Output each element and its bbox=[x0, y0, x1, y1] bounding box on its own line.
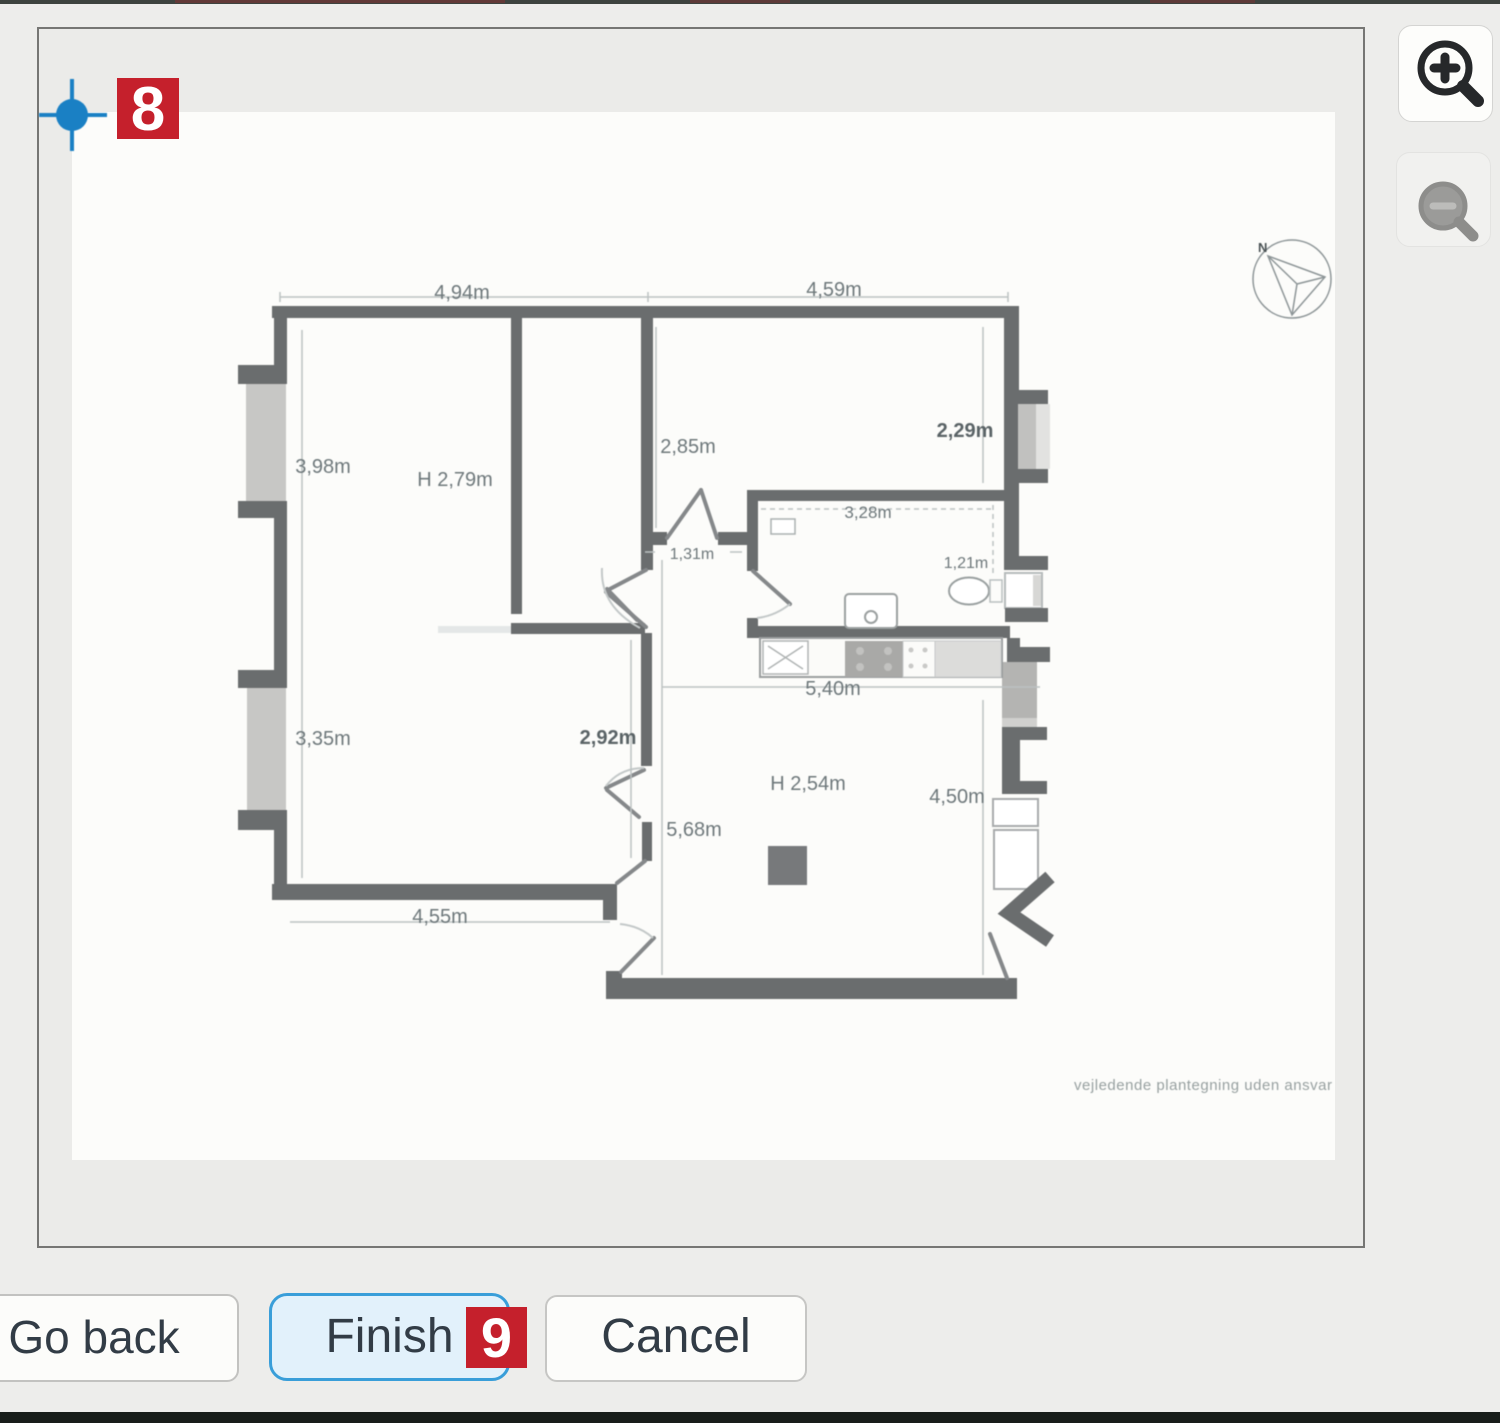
svg-text:4,59m: 4,59m bbox=[806, 279, 862, 301]
svg-text:4,50m: 4,50m bbox=[929, 786, 985, 808]
svg-text:N: N bbox=[1258, 240, 1267, 255]
svg-text:4,94m: 4,94m bbox=[434, 282, 490, 304]
svg-text:H 2,79m: H 2,79m bbox=[417, 469, 493, 491]
svg-text:1,31m: 1,31m bbox=[670, 546, 714, 563]
svg-text:1,21m: 1,21m bbox=[944, 555, 988, 572]
svg-text:2,92m: 2,92m bbox=[580, 727, 637, 749]
svg-text:3,28m: 3,28m bbox=[844, 503, 891, 522]
svg-text:4,55m: 4,55m bbox=[412, 906, 468, 928]
svg-text:5,68m: 5,68m bbox=[666, 819, 722, 841]
svg-text:3,98m: 3,98m bbox=[295, 456, 351, 478]
svg-text:H 2,54m: H 2,54m bbox=[770, 773, 846, 795]
svg-text:5,40m: 5,40m bbox=[805, 678, 861, 700]
svg-text:2,29m: 2,29m bbox=[937, 420, 994, 442]
svg-text:2,85m: 2,85m bbox=[660, 436, 716, 458]
svg-text:3,35m: 3,35m bbox=[295, 728, 351, 750]
svg-text:vejledende plantegning uden an: vejledende plantegning uden ansvar bbox=[1074, 1077, 1332, 1094]
